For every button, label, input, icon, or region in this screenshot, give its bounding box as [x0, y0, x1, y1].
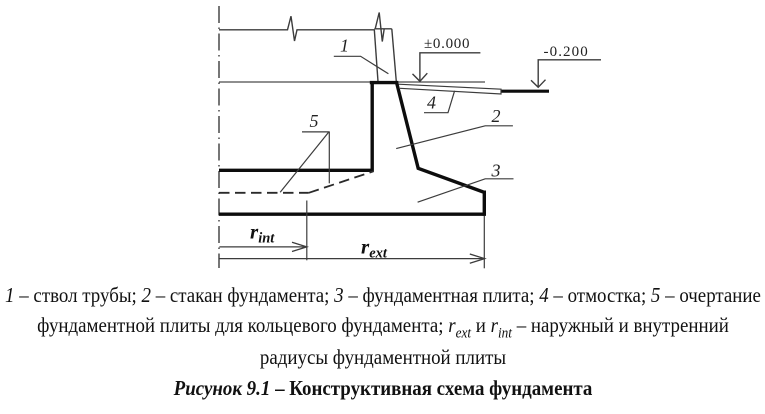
svg-text:±0.000: ±0.000 [424, 36, 470, 52]
svg-text:3: 3 [491, 161, 501, 181]
svg-text:rext: rext [361, 234, 388, 261]
svg-text:5: 5 [310, 111, 319, 131]
svg-text:-0.200: -0.200 [544, 44, 589, 60]
svg-text:2: 2 [492, 106, 501, 126]
svg-text:4: 4 [427, 92, 436, 112]
svg-text:1: 1 [340, 36, 349, 56]
svg-text:rint: rint [250, 220, 275, 247]
